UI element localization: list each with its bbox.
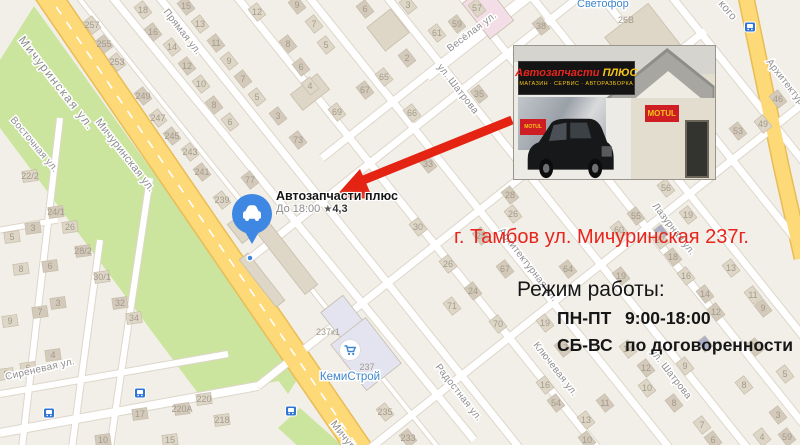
bus-glyph (46, 415, 48, 417)
building-number: 18 (138, 5, 148, 15)
building-number: 24 (468, 286, 478, 296)
photo-door (685, 120, 709, 177)
building-number: 4 (50, 350, 55, 360)
building-number: 7 (699, 420, 704, 430)
building-number: 8 (285, 39, 290, 49)
building-number: 59 (782, 432, 792, 442)
building-number: 235 (377, 407, 392, 417)
building-number: 35 (474, 89, 484, 99)
building-number: 3 (55, 298, 60, 308)
building-number: 255 (96, 39, 111, 49)
building-number: 8 (741, 380, 746, 390)
building-number: 7 (240, 74, 245, 84)
pin-subtitle: До 18:00 ★4,3 (276, 203, 398, 216)
photo-sign: Автозапчасти ПЛЮС МАГАЗИН · СЕРВИС · АВТ… (518, 61, 635, 95)
schedule-title: Режим работы: (517, 278, 793, 302)
building-number: 253 (109, 57, 124, 67)
building-number: 16 (540, 380, 550, 390)
building-number: 6 (710, 435, 715, 445)
building-number: 11 (600, 398, 609, 408)
building-number: 24/1 (47, 207, 65, 217)
building-number: 34 (129, 313, 139, 323)
building-number: 22/2 (21, 171, 39, 181)
building-number: 10 (642, 383, 652, 393)
building-number: 9 (7, 316, 12, 326)
address-annotation: г. Тамбов ул. Мичуринская 237г. (454, 226, 749, 249)
building-number: 9 (294, 0, 299, 10)
building-number: 220А (171, 404, 192, 414)
pin-label[interactable]: Автозапчасти плюс До 18:00 ★4,3 (276, 189, 398, 216)
bus-glyph (292, 413, 294, 415)
building-number: 3 (30, 223, 35, 233)
building-number: 33 (423, 159, 433, 169)
building-number: 26 (508, 209, 518, 219)
building-number: 38 (536, 21, 546, 31)
car-icon-wheel (245, 217, 249, 221)
building-number: 3 (405, 0, 410, 10)
cart-icon-wheel (348, 353, 350, 355)
building-number: 16 (148, 27, 158, 37)
pin-hours: До 18:00 (276, 203, 320, 215)
building-number: 8 (18, 264, 23, 274)
pin-title[interactable]: Автозапчасти плюс (276, 189, 398, 203)
building-number: 243 (182, 147, 197, 157)
building-number: 6 (47, 261, 52, 271)
car-icon-wheel (255, 217, 259, 221)
building-number: 28/2 (74, 246, 92, 256)
bus-glyph (50, 415, 52, 417)
motul-banner-right: MOTUL (645, 105, 679, 122)
cart-icon-wheel (352, 353, 354, 355)
building-number: 8 (211, 100, 216, 110)
building-number: 13 (195, 19, 205, 29)
bus-glyph (747, 24, 753, 28)
pin-rating: 4,3 (332, 203, 347, 215)
building-number: 6 (227, 117, 232, 127)
building-number: 26В (618, 15, 634, 25)
building-number: 17 (135, 409, 145, 419)
building-number: 54 (551, 398, 561, 408)
building-number: 69 (332, 107, 342, 117)
building-number: 9 (682, 361, 687, 371)
building-number: 77 (245, 175, 255, 185)
bus-glyph (288, 413, 290, 415)
poi-svetofor[interactable]: Светофор (577, 0, 629, 10)
star-icon: ★ (323, 204, 332, 215)
building-number: 249 (135, 91, 150, 101)
building-number: 65 (379, 72, 389, 82)
bus-glyph (141, 395, 143, 397)
building-number: 66 (407, 108, 417, 118)
building-number: 49 (758, 119, 768, 129)
building-number: 9 (226, 56, 231, 66)
building-number: 5 (782, 369, 787, 379)
schedule-weekend: СБ-ВСпо договоренности (557, 335, 793, 356)
building-number: 71 (447, 301, 457, 311)
bus-glyph (747, 29, 749, 31)
building-number: 59 (452, 19, 462, 29)
pin-location-dot[interactable] (247, 255, 253, 261)
building-number: 12 (182, 61, 192, 71)
building-number: 5 (254, 92, 259, 102)
building-number: 15 (165, 435, 175, 445)
bus-glyph (751, 29, 753, 31)
building-number: 30 (413, 222, 423, 232)
building-number: 32 (115, 298, 125, 308)
building-number: 26 (443, 259, 453, 269)
building-number: 64 (563, 264, 573, 274)
building-number: 18 (668, 252, 678, 262)
building-number: 245 (164, 131, 179, 141)
storefront-photo: Автозапчасти ПЛЮС МАГАЗИН · СЕРВИС · АВТ… (513, 45, 716, 180)
building-number: 11 (211, 38, 220, 48)
building-number: 6 (362, 4, 367, 14)
photo-sign-subtitle: МАГАЗИН · СЕРВИС · АВТОРАЗБОРКА (519, 81, 633, 87)
building-number: 233 (400, 433, 415, 443)
building-number: 13 (726, 263, 736, 273)
building-number: 5 (9, 232, 14, 242)
building-number: 15 (181, 1, 191, 11)
building-number: 218 (214, 415, 229, 425)
building-number: 10 (582, 435, 592, 445)
building-number: 26 (65, 222, 75, 232)
building-number: 237к1 (316, 327, 340, 337)
building-number: 12 (252, 7, 262, 17)
building-number: 4 (759, 432, 764, 442)
schedule-weekdays: ПН-ПТ9:00-18:00 (557, 308, 793, 329)
building-number: 220 (196, 394, 211, 404)
building-number: 4 (307, 81, 312, 91)
building-number: 10 (98, 435, 108, 445)
building-number: 30/1 (93, 272, 111, 282)
building-number: 61 (432, 28, 442, 38)
building-number: 7 (37, 307, 42, 317)
building-number: 3 (275, 111, 280, 121)
building-number: 67 (360, 85, 370, 95)
poi-kemistroy-icon[interactable] (340, 340, 361, 361)
bus-glyph (46, 410, 52, 414)
building-number: 13 (581, 415, 591, 425)
building-number: 3 (775, 410, 780, 420)
building-number: 239 (214, 195, 229, 205)
building-number: 67 (500, 264, 510, 274)
building-number: 70 (493, 319, 503, 329)
poi-kemistroy[interactable]: КемиСтрой (320, 371, 380, 383)
building-number: 257 (84, 20, 99, 30)
building-number: 7 (311, 19, 316, 29)
building-number: 73 (293, 135, 303, 145)
building-number: 10 (196, 79, 206, 89)
building-number: 241 (194, 167, 209, 177)
bus-glyph (137, 395, 139, 397)
building-number: 57 (472, 3, 482, 13)
car-image (524, 107, 616, 179)
building-number: 56 (661, 183, 671, 193)
building-number: 46 (773, 94, 783, 104)
building-number: 14 (167, 42, 177, 52)
building-number: 2 (404, 53, 409, 63)
building-number: 55 (631, 211, 641, 221)
building-number: 8 (671, 398, 676, 408)
building-number: 6 (298, 62, 303, 72)
building-number: 5 (323, 40, 328, 50)
building-number: 28 (505, 190, 515, 200)
photo-sign-title: Автозапчасти ПЛЮС (515, 68, 637, 79)
bus-glyph (288, 408, 294, 412)
building-number: 53 (733, 126, 743, 136)
schedule-annotation: Режим работы: ПН-ПТ9:00-18:00 СБ-ВСпо до… (517, 278, 793, 356)
building-number: 19 (683, 210, 693, 220)
building-number: 12 (641, 363, 651, 373)
building-number: 247 (150, 113, 165, 123)
bus-glyph (137, 390, 143, 394)
